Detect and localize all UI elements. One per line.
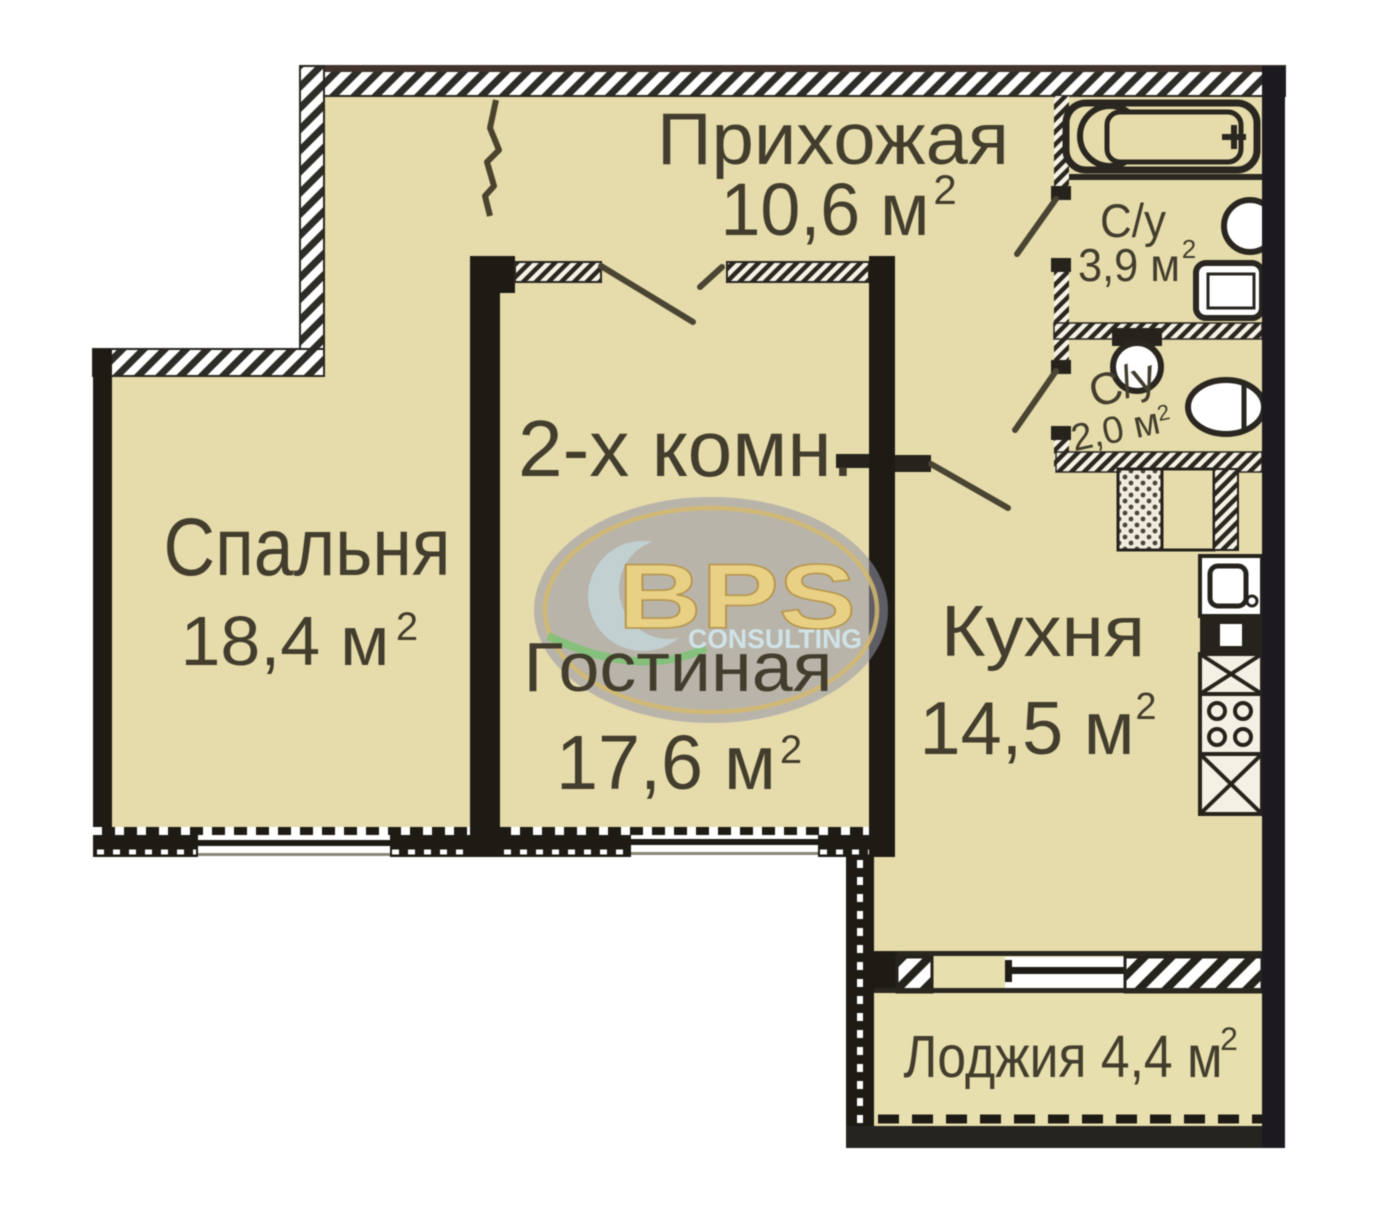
svg-text:2: 2 bbox=[1135, 686, 1156, 728]
svg-text:2: 2 bbox=[933, 166, 956, 213]
svg-text:Спальня: Спальня bbox=[164, 502, 451, 593]
svg-text:3,9 м: 3,9 м bbox=[1078, 239, 1180, 291]
svg-text:10,6 м: 10,6 м bbox=[721, 168, 930, 251]
svg-text:2: 2 bbox=[1182, 234, 1196, 264]
svg-text:2: 2 bbox=[780, 728, 802, 772]
svg-text:Кухня: Кухня bbox=[941, 592, 1145, 672]
svg-text:17,6 м: 17,6 м bbox=[556, 720, 776, 806]
svg-text:2: 2 bbox=[396, 605, 418, 649]
svg-text:Лоджия 4,4 м: Лоджия 4,4 м bbox=[904, 1024, 1223, 1090]
svg-text:2: 2 bbox=[1220, 1021, 1238, 1057]
svg-text:2-х комн.: 2-х комн. bbox=[518, 404, 854, 493]
svg-text:18,4 м: 18,4 м bbox=[181, 602, 390, 680]
svg-text:Гостиная: Гостиная bbox=[524, 628, 833, 706]
svg-text:14,5 м: 14,5 м bbox=[920, 686, 1135, 770]
